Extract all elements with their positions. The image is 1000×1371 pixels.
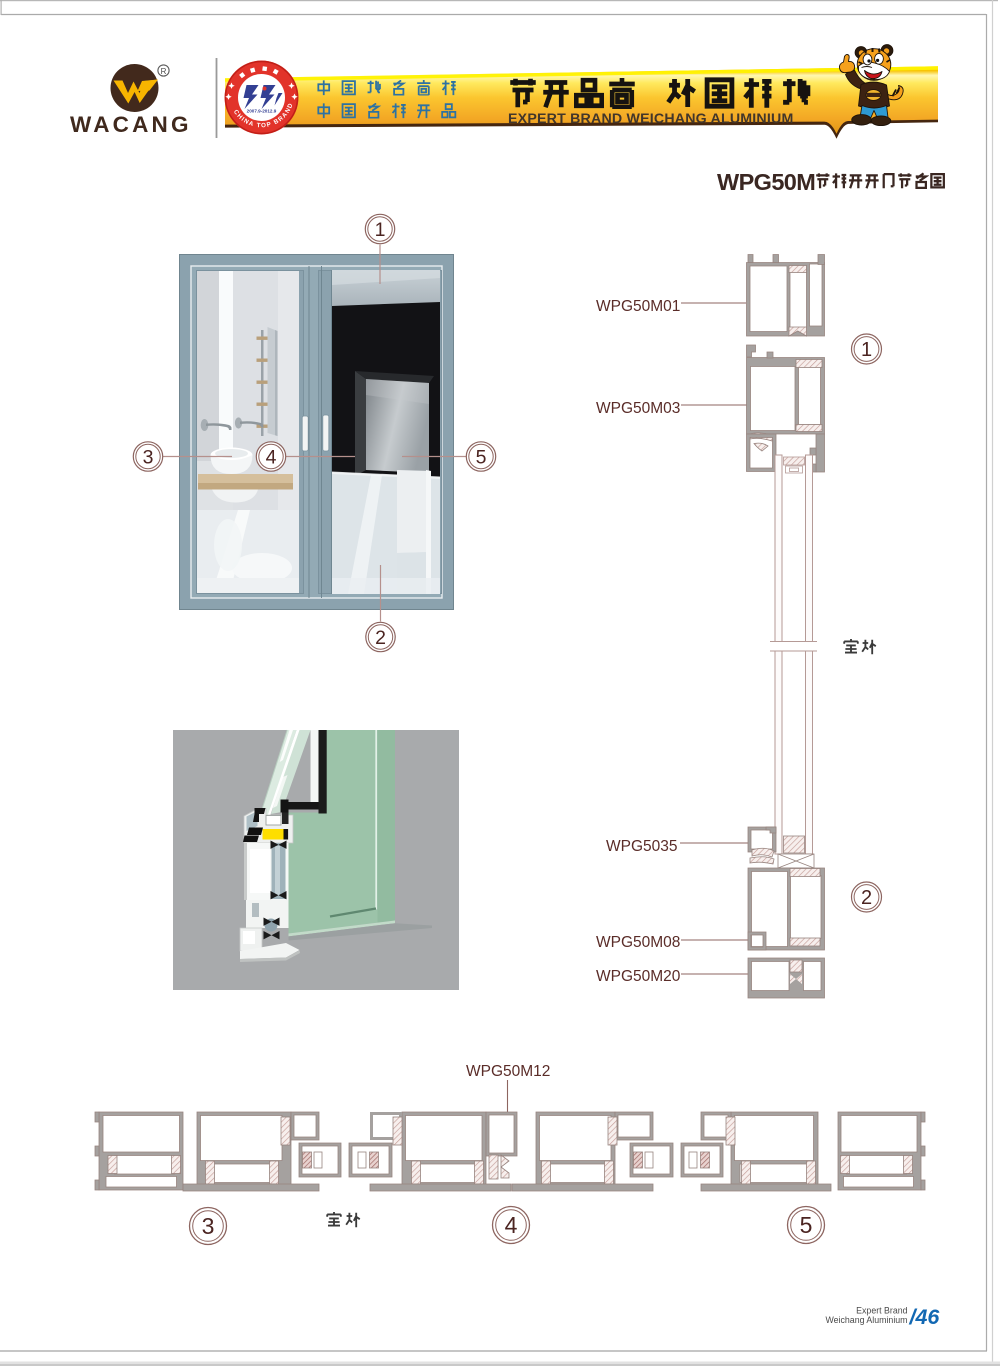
svg-text:1: 1 [375, 219, 386, 241]
svg-text:5: 5 [476, 447, 487, 469]
svg-text:4: 4 [266, 447, 277, 469]
svg-text:WPG5035: WPG5035 [606, 838, 678, 855]
svg-text:WPG50M20: WPG50M20 [596, 968, 681, 985]
svg-text:EXPERT BRAND WEICHANG ALUMINIU: EXPERT BRAND WEICHANG ALUMINIUM [508, 111, 793, 127]
svg-text:WACANG: WACANG [70, 112, 192, 137]
svg-text:WPG50M03: WPG50M03 [596, 400, 680, 417]
svg-text:2: 2 [375, 627, 386, 649]
svg-text:WPG50M01: WPG50M01 [596, 298, 680, 315]
svg-text:WPG50M: WPG50M [717, 169, 815, 195]
svg-text:4: 4 [505, 1212, 518, 1238]
svg-text:3: 3 [202, 1213, 215, 1239]
svg-text:WPG50M12: WPG50M12 [466, 1063, 550, 1080]
svg-text:1: 1 [861, 339, 872, 361]
svg-text:Weichang Aluminium: Weichang Aluminium [826, 1315, 908, 1325]
svg-text:3: 3 [143, 447, 154, 469]
svg-text:2: 2 [861, 887, 872, 909]
svg-text:WPG50M08: WPG50M08 [596, 934, 680, 951]
svg-text:/46: /46 [909, 1305, 941, 1329]
svg-text:5: 5 [800, 1212, 813, 1238]
svg-text:2007.9-2012.9: 2007.9-2012.9 [247, 109, 277, 114]
svg-text:Expert Brand: Expert Brand [856, 1306, 907, 1316]
svg-text:R: R [161, 67, 167, 76]
